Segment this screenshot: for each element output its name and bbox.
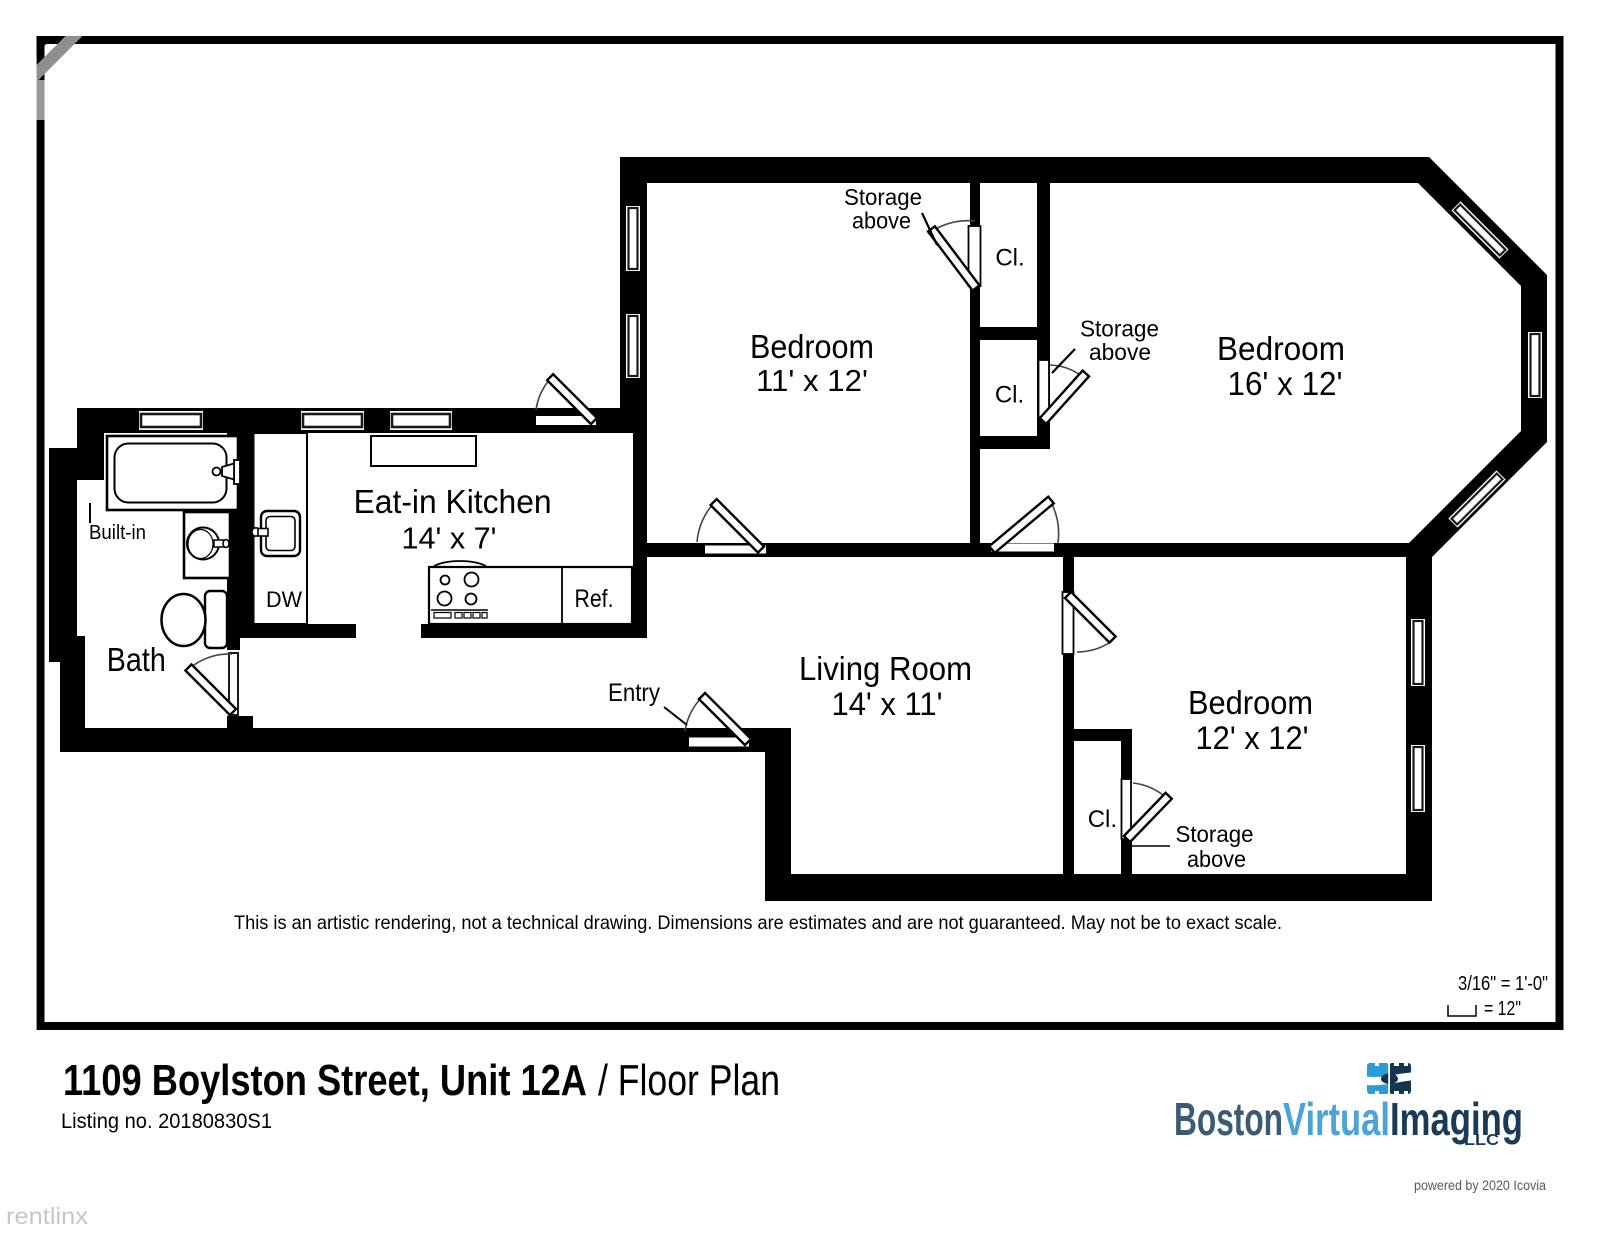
svg-text:16' x 12': 16' x 12' <box>1228 365 1343 402</box>
svg-text:Bath: Bath <box>107 641 166 678</box>
svg-text:This is an artistic rendering,: This is an artistic rendering, not a tec… <box>234 912 1282 934</box>
svg-text:12' x 12': 12' x 12' <box>1196 720 1309 756</box>
svg-text:Eat-in Kitchen: Eat-in Kitchen <box>354 483 552 520</box>
svg-text:DW: DW <box>266 587 303 612</box>
svg-text:Bedroom: Bedroom <box>750 328 874 365</box>
svg-text:Storage: Storage <box>1080 316 1159 342</box>
svg-text:Listing no. 20180830S1: Listing no. 20180830S1 <box>61 1109 272 1133</box>
svg-text:Built-in: Built-in <box>89 521 146 544</box>
svg-text:Bedroom: Bedroom <box>1217 330 1345 367</box>
svg-text:Entry: Entry <box>608 679 660 707</box>
svg-text:3/16" = 1'-0": 3/16" = 1'-0" <box>1458 973 1548 995</box>
svg-text:11' x 12': 11' x 12' <box>756 363 868 398</box>
svg-text:14' x 7': 14' x 7' <box>402 521 497 556</box>
svg-text:Cl.: Cl. <box>1088 806 1117 833</box>
svg-text:Imaging: Imaging <box>1390 1093 1523 1145</box>
svg-text:Living Room: Living Room <box>799 650 972 687</box>
svg-text:Storage: Storage <box>1176 821 1254 847</box>
svg-text:1109 Boylston Street, Unit 12A: 1109 Boylston Street, Unit 12A <box>63 1056 587 1105</box>
svg-text:Cl.: Cl. <box>995 382 1024 409</box>
svg-text:rentlinx: rentlinx <box>6 1203 89 1229</box>
svg-text:above: above <box>1089 339 1151 365</box>
svg-text:above: above <box>852 208 911 234</box>
svg-text:14' x 11': 14' x 11' <box>832 686 943 722</box>
svg-text:Ref.: Ref. <box>575 585 614 613</box>
svg-text:powered by 2020 Icovia: powered by 2020 Icovia <box>1414 1177 1546 1193</box>
svg-text:Storage: Storage <box>844 184 922 210</box>
svg-text:Virtual: Virtual <box>1283 1093 1390 1145</box>
svg-text:/ Floor Plan: / Floor Plan <box>598 1056 780 1105</box>
svg-text:Cl.: Cl. <box>995 245 1024 272</box>
svg-text:Bedroom: Bedroom <box>1188 684 1313 721</box>
svg-text:LLC: LLC <box>1464 1132 1499 1149</box>
svg-text:Boston: Boston <box>1174 1093 1283 1145</box>
svg-text:= 12": = 12" <box>1484 998 1521 1020</box>
svg-text:above: above <box>1187 846 1246 872</box>
